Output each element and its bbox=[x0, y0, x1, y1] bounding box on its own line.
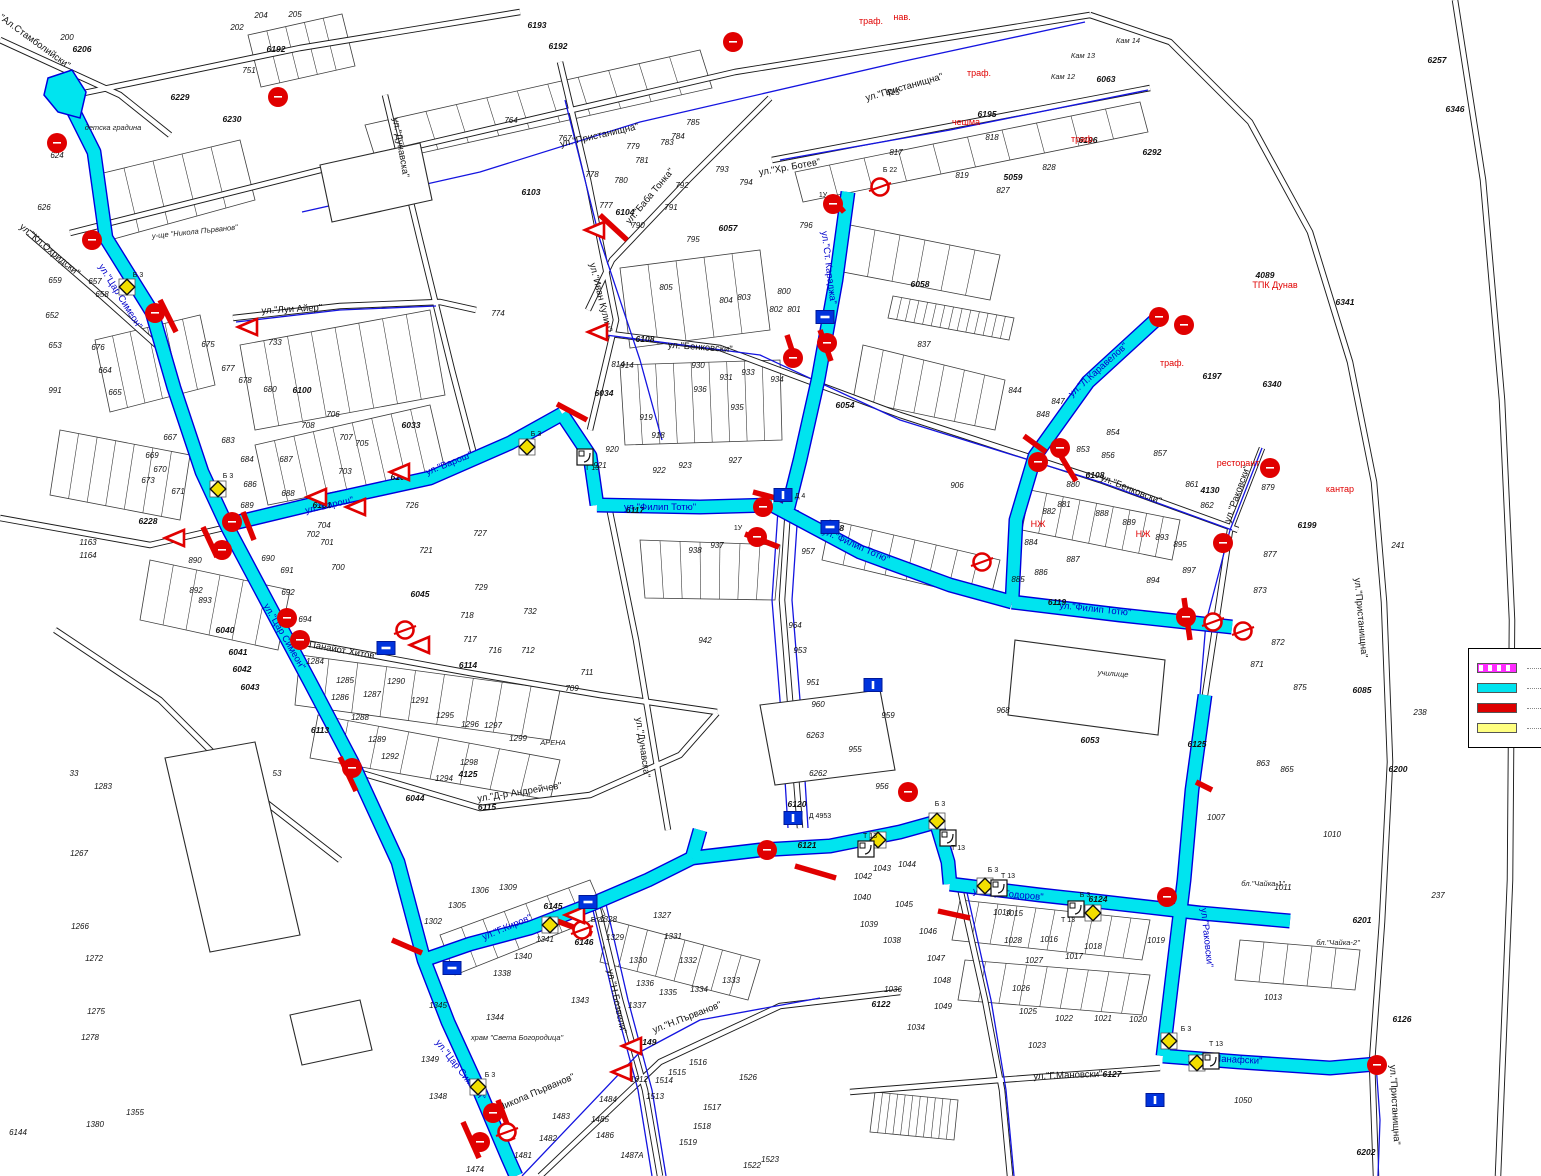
marker-tag-label: Б 22 bbox=[883, 167, 897, 174]
parcel-number: 204 bbox=[253, 11, 268, 20]
parcel-number: 1309 bbox=[499, 883, 517, 892]
parcel-number: 931 bbox=[719, 373, 732, 382]
street-code: 6197 bbox=[1203, 371, 1223, 381]
parcel-number: 1518 bbox=[693, 1122, 711, 1131]
parcel-number: 1292 bbox=[381, 752, 399, 761]
street-code: 6292 bbox=[1143, 147, 1162, 157]
street-code: 6041 bbox=[229, 647, 248, 657]
parcel-number: 923 bbox=[678, 461, 692, 470]
marker-tag-label: Б 3 bbox=[223, 473, 234, 480]
parcel-number: 951 bbox=[806, 678, 819, 687]
parcel-number: 1275 bbox=[87, 1007, 105, 1016]
parcel-number: 848 bbox=[1036, 410, 1050, 419]
parcel-number: 857 bbox=[1153, 449, 1167, 458]
parcel-number: 1340 bbox=[514, 952, 532, 961]
parcel-number: 1015 bbox=[1005, 909, 1023, 918]
parcel-number: 1164 bbox=[79, 551, 97, 560]
parcel-number: 1341 bbox=[536, 935, 554, 944]
parcel-number: 1486 bbox=[596, 1131, 614, 1140]
parcel-number: 1302 bbox=[424, 917, 442, 926]
street-code: 6126 bbox=[1393, 1014, 1412, 1024]
legend-swatch-red bbox=[1477, 703, 1517, 713]
parcel-number: 1017 bbox=[1065, 952, 1083, 961]
parcel-number: 689 bbox=[240, 501, 254, 510]
marker-tag-label: Т 13 bbox=[951, 845, 965, 852]
parcel-number: 1287 bbox=[363, 690, 381, 699]
parcel-number: 727 bbox=[473, 529, 487, 538]
parcel-number: 1522 bbox=[743, 1161, 761, 1170]
street-name: ул."Пристанищна" bbox=[864, 71, 944, 104]
parcel-number: 1487А bbox=[620, 1151, 643, 1160]
parcel-number: 953 bbox=[793, 646, 807, 655]
street-code: 6125 bbox=[1188, 739, 1207, 749]
parcel-number: 673 bbox=[141, 476, 155, 485]
street-code: 6257 bbox=[1428, 55, 1448, 65]
marker-tag-label: 1У bbox=[734, 525, 743, 532]
marker-tag-label: Б 3 bbox=[1181, 1026, 1192, 1033]
parcel-number: 779 bbox=[626, 142, 640, 151]
street-code: 6193 bbox=[528, 20, 547, 30]
parcel-number: 861 bbox=[1185, 480, 1198, 489]
parcel-number: 1036 bbox=[884, 985, 902, 994]
poi-red-label: чешма bbox=[952, 117, 980, 127]
parcel-number: 1336 bbox=[636, 979, 654, 988]
parcel-number: 1283 bbox=[94, 782, 112, 791]
street-code: 6057 bbox=[719, 223, 739, 233]
parcel-number: 732 bbox=[523, 607, 537, 616]
street-code: 6201 bbox=[1353, 915, 1372, 925]
parcel-number: 1298 bbox=[460, 758, 478, 767]
parcel-number: 991 bbox=[48, 386, 61, 395]
parcel-number: 702 bbox=[306, 530, 320, 539]
parcel-number: 706 bbox=[326, 410, 340, 419]
parcel-number: 872 bbox=[1271, 638, 1285, 647]
parcel-number: 964 bbox=[788, 621, 802, 630]
parcel-number: 802 bbox=[769, 305, 783, 314]
parcel-number: 709 bbox=[565, 684, 579, 693]
parcel-number: 1516 bbox=[689, 1058, 707, 1067]
marker-tag-label: Т 13 bbox=[1061, 917, 1075, 924]
parcel-number: 828 bbox=[1042, 163, 1056, 172]
parcel-number: 692 bbox=[281, 588, 295, 597]
parcel-number: 959 bbox=[881, 711, 895, 720]
parcel-number: 1481 bbox=[514, 1151, 532, 1160]
parcel-number: 686 bbox=[243, 480, 257, 489]
parcel-number: 955 bbox=[848, 745, 862, 754]
parcel-number: 1338 bbox=[493, 969, 511, 978]
marker-tag-label: Б 22 bbox=[591, 917, 605, 924]
parcel-number: 1355 bbox=[126, 1108, 144, 1117]
street-code: 4130 bbox=[1200, 485, 1220, 495]
parcel-number: 800 bbox=[777, 287, 791, 296]
building-label: Кам 14 bbox=[1116, 36, 1140, 45]
poi-red-label: нав. bbox=[893, 12, 910, 22]
parcel-number: 957 bbox=[801, 547, 815, 556]
parcel-number: 885 bbox=[1011, 575, 1025, 584]
parcel-number: 1345 bbox=[429, 1001, 447, 1010]
poi-red-label: кантар bbox=[1326, 484, 1354, 494]
street-code: 5059 bbox=[1004, 172, 1023, 182]
parcel-number: 1335 bbox=[659, 988, 677, 997]
street-code: 6346 bbox=[1446, 104, 1465, 114]
parcel-number: 1514 bbox=[655, 1076, 673, 1085]
legend-label bbox=[1527, 687, 1541, 689]
parcel-number: 680 bbox=[263, 385, 277, 394]
street-name: ул."Луи Айер" bbox=[261, 302, 322, 316]
parcel-number: 1286 bbox=[331, 693, 349, 702]
parcel-number: 935 bbox=[730, 403, 744, 412]
parcel-number: 1306 bbox=[471, 886, 489, 895]
parcel-number: 764 bbox=[504, 116, 518, 125]
closure-bar-marker bbox=[795, 866, 836, 878]
building-label: бл."Чайка-2" bbox=[1316, 938, 1360, 947]
street-code: 6127 bbox=[1103, 1069, 1123, 1079]
parcel-number: 683 bbox=[221, 436, 235, 445]
parcel-number: 751 bbox=[242, 66, 255, 75]
parcel-number: 691 bbox=[280, 566, 293, 575]
parcel-number: 1020 bbox=[1129, 1015, 1147, 1024]
parcel-number: 777 bbox=[599, 201, 613, 210]
marker-tag-label: Т 13 bbox=[1001, 873, 1015, 880]
legend-label bbox=[1527, 667, 1541, 669]
warning-triangle-marker bbox=[410, 637, 429, 653]
poi-red-label: траф. bbox=[967, 68, 991, 78]
parcel-number: 1042 bbox=[854, 872, 872, 881]
parcel-number: 960 bbox=[811, 700, 825, 709]
poi-red-label: траф. bbox=[1071, 134, 1095, 144]
parcel-number: 237 bbox=[1430, 891, 1445, 900]
parcel-number: 1043 bbox=[873, 864, 891, 873]
street-code: 6206 bbox=[73, 44, 92, 54]
parcel-number: 922 bbox=[652, 466, 666, 475]
parcel-number: 701 bbox=[320, 538, 333, 547]
parcel-number: 664 bbox=[98, 366, 112, 375]
parcel-number: 796 bbox=[799, 221, 813, 230]
parcel-number: 1517 bbox=[703, 1103, 721, 1112]
parcel-number: 1267 bbox=[70, 849, 88, 858]
parcel-number: 678 bbox=[238, 376, 252, 385]
street-code: 6341 bbox=[1336, 297, 1355, 307]
parcel-number: 1327 bbox=[653, 911, 671, 920]
parcel-number: 819 bbox=[955, 171, 969, 180]
parcel-number: 1284 bbox=[306, 657, 324, 666]
parcel-number: 1380 bbox=[86, 1120, 104, 1129]
poi-red-label: НЖ bbox=[1031, 519, 1046, 529]
parcel-number: 718 bbox=[460, 611, 474, 620]
parcel-number: 1294 bbox=[435, 774, 453, 783]
street-name: ул."Пристанищна" bbox=[1352, 577, 1370, 658]
road-network bbox=[0, 0, 1512, 1176]
street-code: 6058 bbox=[911, 279, 930, 289]
poi-red-label: траф. bbox=[1160, 358, 1184, 368]
warning-triangle-marker bbox=[588, 324, 607, 340]
parcel-number: 1047 bbox=[927, 954, 945, 963]
poi-red-label: траф. bbox=[859, 16, 883, 26]
marker-tag-label: 1У bbox=[819, 192, 828, 199]
parcel-number: 1296 bbox=[461, 720, 479, 729]
legend-swatch-cyan bbox=[1477, 683, 1517, 693]
parcel-number: 1348 bbox=[429, 1092, 447, 1101]
marker-tag-label: Б 3 bbox=[935, 801, 946, 808]
parcel-number: 658 bbox=[95, 290, 109, 299]
parcel-number: 1332 bbox=[679, 956, 697, 965]
parcel-number: 865 bbox=[1280, 765, 1294, 774]
parcel-number: 1344 bbox=[486, 1013, 504, 1022]
parcel-number: 879 bbox=[1261, 483, 1275, 492]
parcel-number: 882 bbox=[1042, 507, 1056, 516]
legend-item bbox=[1477, 702, 1541, 715]
legend-label bbox=[1527, 707, 1541, 709]
parcel-number: 1483 bbox=[552, 1112, 570, 1121]
street-code: 6043 bbox=[241, 682, 260, 692]
parcel-number: 933 bbox=[741, 368, 755, 377]
street-code: 6192 bbox=[267, 44, 286, 54]
parcel-number: 667 bbox=[163, 433, 177, 442]
street-code: 6034 bbox=[595, 388, 614, 398]
parcel-number: 934 bbox=[770, 375, 784, 384]
poi-red-label: ресторант bbox=[1217, 458, 1260, 468]
marker-tag-label: Т 13 bbox=[585, 465, 599, 472]
parcel-number: 1021 bbox=[1094, 1014, 1112, 1023]
street-name: ул."Бенковски" bbox=[667, 340, 733, 356]
parcel-number: 794 bbox=[739, 178, 753, 187]
parcel-number: 892 bbox=[189, 586, 203, 595]
street-code: 6103 bbox=[522, 187, 541, 197]
marker-tag-label: Б 3 bbox=[1080, 892, 1091, 899]
parcel-number: 626 bbox=[37, 203, 51, 212]
parcel-number: 837 bbox=[917, 340, 931, 349]
parcel-number: 669 bbox=[145, 451, 159, 460]
marker-tag-label: Д 4 bbox=[795, 493, 806, 500]
street-name: ул."Л.Каравелов" bbox=[1067, 341, 1131, 400]
parcel-number: 733 bbox=[268, 338, 282, 347]
parcel-number: 33 bbox=[70, 769, 79, 778]
parcel-number: 1330 bbox=[629, 956, 647, 965]
parcel-number: 795 bbox=[686, 235, 700, 244]
street-code: 6042 bbox=[233, 664, 252, 674]
marker-tag-label: Б 3 bbox=[485, 1072, 496, 1079]
parcel-number: 1050 bbox=[1234, 1096, 1252, 1105]
street-name: ул."Пристанищна" bbox=[1387, 1065, 1402, 1146]
parcel-number: 202 bbox=[229, 23, 244, 32]
parcel-number: 1034 bbox=[907, 1023, 925, 1032]
street-code: 6192 bbox=[549, 41, 568, 51]
parcel-number: 888 bbox=[1095, 509, 1109, 518]
parcel-number: 803 bbox=[737, 293, 751, 302]
map-markers: Б 3Б 3Б 3Т 13Б 3Т 13Б 3Т 13Б 3Т 13Б 3Т 1… bbox=[47, 32, 1387, 1158]
parcel-number: 687 bbox=[279, 455, 293, 464]
parcel-number: 241 bbox=[1390, 541, 1404, 550]
parcel-number: 827 bbox=[996, 186, 1010, 195]
parcel-number: 690 bbox=[261, 554, 275, 563]
parcel-number: 1018 bbox=[1084, 942, 1102, 951]
parcel-number: 1016 bbox=[1040, 935, 1058, 944]
parcel-number: 671 bbox=[171, 487, 184, 496]
street-code: 6202 bbox=[1357, 1147, 1376, 1157]
parcel-number: 1526 bbox=[739, 1073, 757, 1082]
parcel-number: 893 bbox=[1155, 533, 1169, 542]
parcel-number: 927 bbox=[728, 456, 742, 465]
street-code: 6195 bbox=[978, 109, 997, 119]
parcel-number: 700 bbox=[331, 563, 345, 572]
parcel-number: 712 bbox=[521, 646, 535, 655]
parcel-number: 670 bbox=[153, 465, 167, 474]
legend-item bbox=[1477, 662, 1541, 675]
parcel-number: 652 bbox=[45, 311, 59, 320]
street-code: 6228 bbox=[139, 516, 158, 526]
parcel-number: 1515 bbox=[668, 1068, 686, 1077]
parcel-number: 688 bbox=[281, 489, 295, 498]
building-label: АРЕНА bbox=[539, 738, 565, 747]
parcel-number: 784 bbox=[671, 132, 685, 141]
parcel-number: 1288 bbox=[351, 713, 369, 722]
parcel-number: 918 bbox=[651, 431, 665, 440]
parcel-number: 889 bbox=[1122, 518, 1136, 527]
marker-tag-label: Б 3 bbox=[133, 272, 144, 279]
parcel-number: 890 bbox=[188, 556, 202, 565]
parcel-number: 844 bbox=[1008, 386, 1022, 395]
parcel-number: 854 bbox=[1106, 428, 1120, 437]
street-code: 6044 bbox=[406, 793, 425, 803]
parcel-number: 781 bbox=[635, 156, 648, 165]
parcel-number: 930 bbox=[691, 361, 705, 370]
legend-label bbox=[1527, 727, 1541, 729]
street-name: ул."Бенковски" bbox=[1099, 472, 1163, 507]
parcel-number: 817 bbox=[889, 148, 903, 157]
parcel-number: 818 bbox=[985, 133, 999, 142]
parcel-number: 1007 bbox=[1207, 813, 1225, 822]
parcel-number: 1329 bbox=[606, 933, 624, 942]
parcel-number: 708 bbox=[301, 421, 315, 430]
street-name: ул."Филип Тотю" bbox=[624, 502, 696, 513]
building-label: Кам 12 bbox=[1051, 72, 1076, 81]
map-canvas[interactable]: 2002022042057516246266596576586526536766… bbox=[0, 0, 1541, 1176]
parcel-number: 919 bbox=[639, 413, 653, 422]
poi-red-label: НЖ bbox=[1136, 529, 1151, 539]
parcel-number: 684 bbox=[240, 455, 254, 464]
parcel-number: 676 bbox=[91, 343, 105, 352]
street-code: 6229 bbox=[171, 92, 190, 102]
parcel-number: 968 bbox=[996, 706, 1010, 715]
parcel-number: 200 bbox=[59, 33, 74, 42]
parcel-number: 920 bbox=[605, 445, 619, 454]
parcel-number: 1299 bbox=[509, 734, 527, 743]
parcel-number: 6262 bbox=[809, 769, 827, 778]
parcel-number: 881 bbox=[1057, 500, 1070, 509]
legend-item bbox=[1477, 682, 1541, 695]
parcel-number: 1027 bbox=[1025, 956, 1043, 965]
map-labels: 2002022042057516246266596576586526536766… bbox=[0, 5, 1465, 1174]
parcel-number: 1513 bbox=[646, 1092, 664, 1101]
parcel-number: 653 bbox=[48, 341, 62, 350]
parcel-number: 1523 bbox=[761, 1155, 779, 1164]
street-code: 4125 bbox=[458, 769, 478, 779]
building-label: храм "Света Богородица" bbox=[470, 1033, 564, 1042]
parcel-number: 936 bbox=[693, 385, 707, 394]
parcel-number: 238 bbox=[1412, 708, 1427, 717]
street-code: 6230 bbox=[223, 114, 242, 124]
parcel-number: 938 bbox=[688, 546, 702, 555]
parcel-number: 1010 bbox=[1323, 830, 1341, 839]
parcel-number: 205 bbox=[287, 10, 302, 19]
parcel-number: 1028 bbox=[1004, 936, 1022, 945]
legend-swatch-yellow bbox=[1477, 723, 1517, 733]
marker-tag-label: Т 13 bbox=[1209, 1041, 1223, 1048]
parcel-number: 785 bbox=[686, 118, 700, 127]
parcel-number: 1485 bbox=[591, 1115, 609, 1124]
parcel-number: 914 bbox=[620, 361, 634, 370]
parcel-number: 1343 bbox=[571, 996, 589, 1005]
street-code: 6040 bbox=[216, 625, 235, 635]
parcel-number: 694 bbox=[298, 615, 312, 624]
street-code: 6113 bbox=[311, 725, 330, 735]
street-code: 6085 bbox=[1353, 685, 1372, 695]
parcel-number: 1019 bbox=[1147, 936, 1165, 945]
parcel-number: 1278 bbox=[81, 1033, 99, 1042]
parcel-number: 657 bbox=[88, 277, 102, 286]
parcel-number: 1025 bbox=[1019, 1007, 1037, 1016]
parcel-number: 1349 bbox=[421, 1055, 439, 1064]
parcel-number: 665 bbox=[108, 388, 122, 397]
parcel-number: 856 bbox=[1101, 451, 1115, 460]
street-code: 6053 bbox=[1081, 735, 1100, 745]
parcel-number: 677 bbox=[221, 364, 235, 373]
parcel-number: 707 bbox=[339, 433, 353, 442]
poi-red-label: ТПК Дунав bbox=[1252, 280, 1297, 290]
parcel-number: 659 bbox=[48, 276, 62, 285]
parcel-number: 778 bbox=[585, 170, 599, 179]
parcel-number: 1334 bbox=[690, 985, 708, 994]
parcel-number: 1291 bbox=[411, 696, 429, 705]
marker-tag-label: Б 3 bbox=[531, 431, 542, 438]
parcel-number: 1163 bbox=[79, 538, 97, 547]
street-code: 6114 bbox=[459, 660, 478, 670]
parcel-number: 906 bbox=[950, 481, 964, 490]
parcel-number: 1048 bbox=[933, 976, 951, 985]
parcel-number: 1038 bbox=[883, 936, 901, 945]
street-code: 6200 bbox=[1389, 764, 1408, 774]
parcel-number: 875 bbox=[1293, 683, 1307, 692]
map-stage: 2002022042057516246266596576586526536766… bbox=[0, 0, 1541, 1176]
parcel-number: 721 bbox=[419, 546, 432, 555]
parcel-number: 1290 bbox=[387, 677, 405, 686]
building-label: Кам 13 bbox=[1071, 51, 1096, 60]
parcel-number: 871 bbox=[1250, 660, 1263, 669]
parcel-number: 1484 bbox=[599, 1095, 617, 1104]
parcel-number: 793 bbox=[715, 165, 729, 174]
street-code: 6145 bbox=[544, 901, 563, 911]
parcel-number: 1013 bbox=[1264, 993, 1282, 1002]
street-code: 6033 bbox=[402, 420, 421, 430]
parcel-number: 873 bbox=[1253, 586, 1267, 595]
parcel-number: 804 bbox=[719, 296, 733, 305]
parcel-number: 893 bbox=[198, 596, 212, 605]
street-code: 6045 bbox=[411, 589, 430, 599]
street-code: 6122 bbox=[872, 999, 891, 1009]
parcel-number: 897 bbox=[1182, 566, 1196, 575]
parcel-number: 956 bbox=[875, 782, 889, 791]
parcel-number: 886 bbox=[1034, 568, 1048, 577]
parcel-number: 780 bbox=[614, 176, 628, 185]
parcel-number: 1285 bbox=[336, 676, 354, 685]
street-code: 6120 bbox=[788, 799, 807, 809]
parcel-number: 1272 bbox=[85, 954, 103, 963]
parcel-number: 863 bbox=[1256, 759, 1270, 768]
parcel-number: 716 bbox=[488, 646, 502, 655]
parcel-number: 6144 bbox=[9, 1128, 27, 1137]
parcel-number: 703 bbox=[338, 467, 352, 476]
street-code: 6054 bbox=[836, 400, 855, 410]
